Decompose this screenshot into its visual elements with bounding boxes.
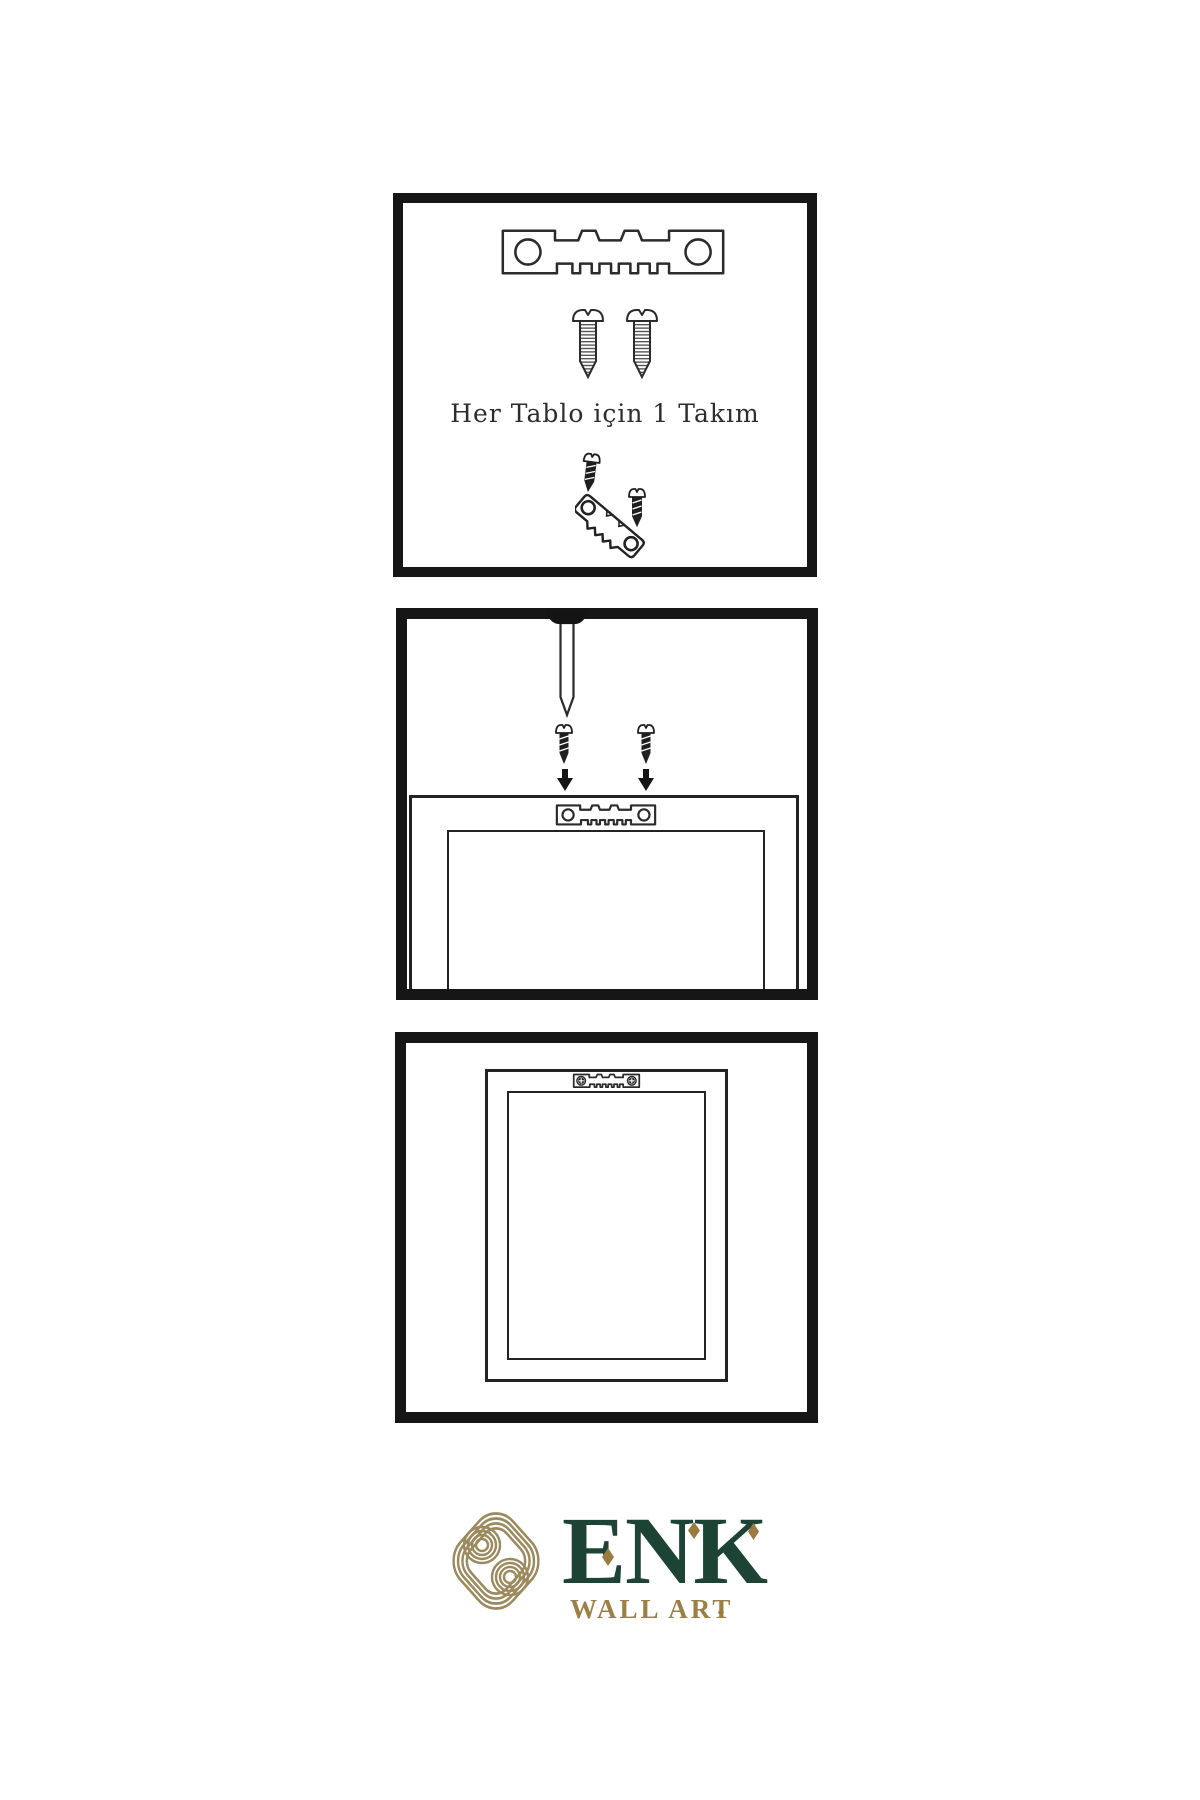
screw-icon: [627, 310, 657, 377]
interwoven-knot-icon: [440, 1497, 552, 1625]
sawtooth-hanger-screwed-icon: [572, 1070, 641, 1091]
assembly-illustration: [575, 449, 677, 561]
brand-tagline: WALL ART: [570, 1594, 733, 1624]
screw-dark-icon: [580, 453, 600, 492]
instruction-sheet: Her Tablo için 1 Takım: [0, 0, 1200, 1800]
picture-frame-inner: [447, 830, 765, 989]
screw-icon: [573, 310, 603, 377]
picture-frame: [485, 1069, 728, 1382]
step-1-panel: Her Tablo için 1 Takım: [393, 193, 817, 577]
screw-dark-icon: [629, 489, 645, 526]
phillips-screw-head-icon: [577, 1076, 586, 1085]
step-3-panel: [395, 1032, 818, 1423]
screw-dark-icon: [637, 722, 655, 766]
screw-pair-icon: [571, 306, 661, 382]
sawtooth-hanger-icon: [497, 223, 729, 281]
sawtooth-hanger-icon: [553, 802, 659, 827]
arrow-down-icon: [557, 769, 573, 791]
picture-frame-inner: [507, 1091, 706, 1360]
step-2-panel: [396, 608, 818, 1000]
wall-area: [407, 619, 807, 989]
nail-icon: [544, 609, 590, 719]
screw-dark-icon: [555, 722, 573, 766]
brand-logo: ENK WALL ART: [440, 1490, 780, 1640]
brand-name: ENK: [562, 1506, 767, 1596]
phillips-screw-head-icon: [627, 1076, 636, 1085]
arrow-down-icon: [638, 769, 654, 791]
kit-caption: Her Tablo için 1 Takım: [403, 399, 807, 428]
